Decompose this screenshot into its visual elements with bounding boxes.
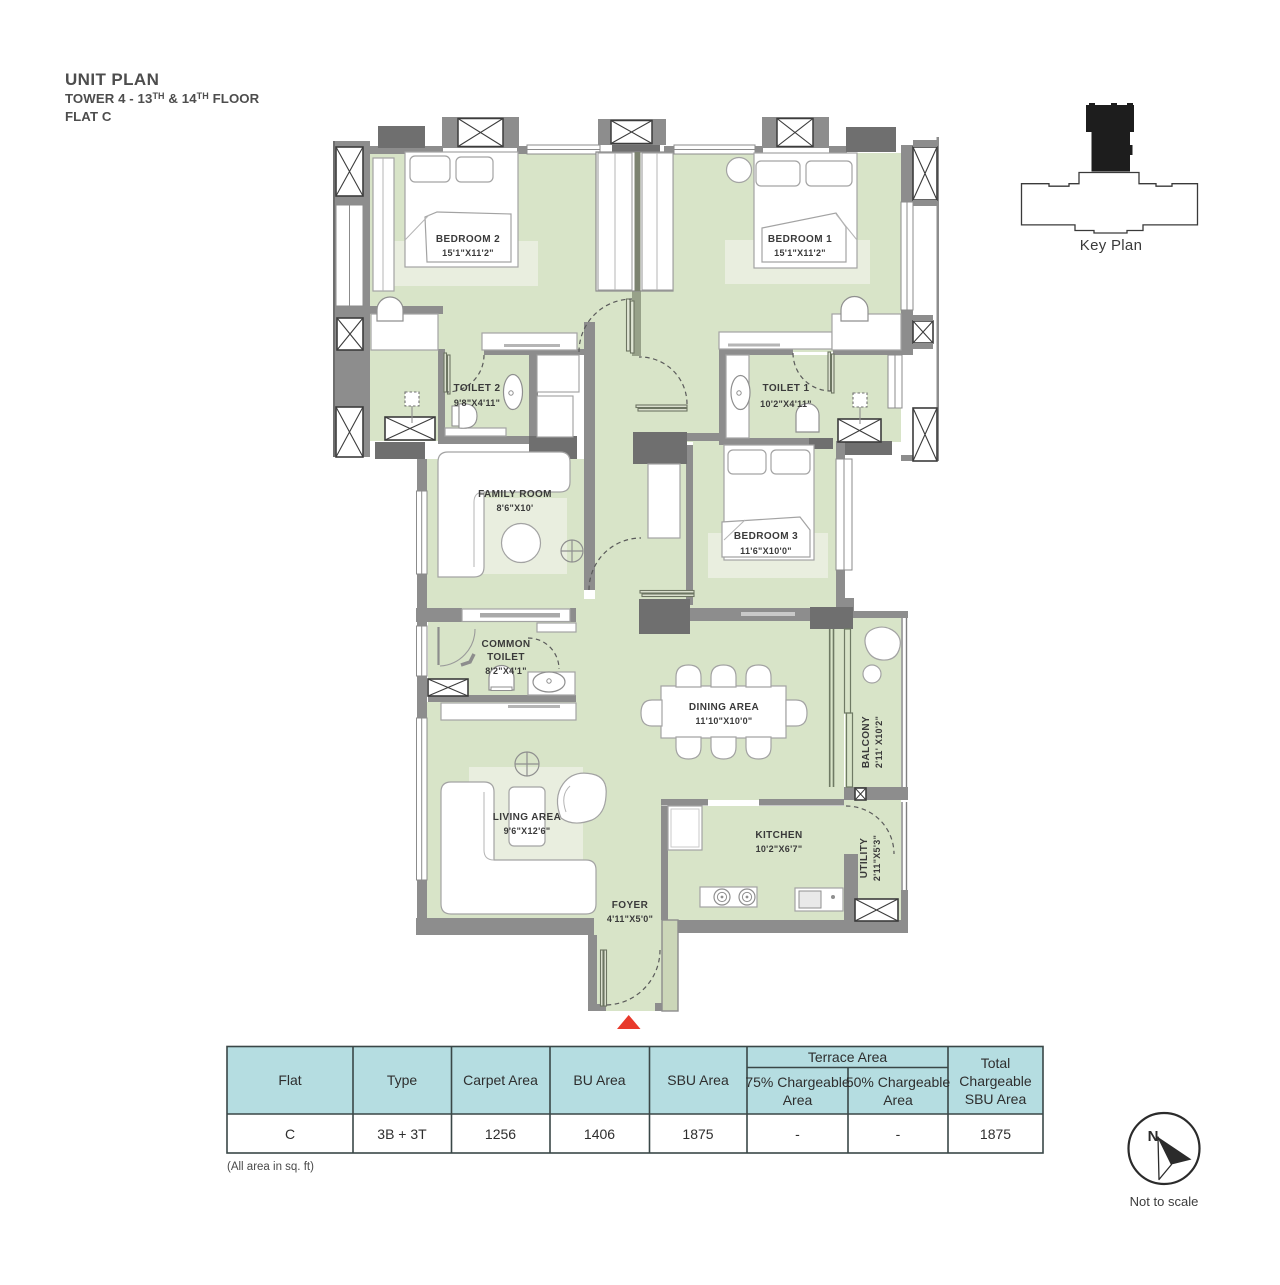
svg-text:1875: 1875 bbox=[682, 1126, 713, 1142]
svg-text:-: - bbox=[896, 1126, 901, 1142]
svg-text:Terrace Area: Terrace Area bbox=[808, 1049, 888, 1065]
svg-text:FLAT C: FLAT C bbox=[65, 109, 112, 124]
svg-text:UTILITY: UTILITY bbox=[859, 838, 870, 879]
svg-text:SBU Area: SBU Area bbox=[667, 1072, 729, 1088]
svg-text:9'8"X4'11": 9'8"X4'11" bbox=[454, 398, 500, 408]
svg-text:KITCHEN: KITCHEN bbox=[755, 830, 802, 841]
svg-text:Key Plan: Key Plan bbox=[1080, 237, 1142, 254]
svg-text:COMMON: COMMON bbox=[481, 639, 530, 650]
svg-text:BEDROOM 3: BEDROOM 3 bbox=[734, 531, 798, 542]
svg-text:9'6"X12'6": 9'6"X12'6" bbox=[504, 826, 551, 836]
svg-text:11'6"X10'0": 11'6"X10'0" bbox=[740, 546, 792, 556]
svg-text:Area: Area bbox=[883, 1092, 913, 1108]
svg-text:15'1"X11'2": 15'1"X11'2" bbox=[442, 248, 494, 258]
svg-text:C: C bbox=[285, 1126, 295, 1142]
svg-text:10'2"X4'11": 10'2"X4'11" bbox=[760, 399, 812, 409]
svg-text:8'6"X10': 8'6"X10' bbox=[497, 503, 534, 513]
svg-text:Carpet Area: Carpet Area bbox=[463, 1072, 538, 1088]
svg-text:8'2"X4'1": 8'2"X4'1" bbox=[485, 666, 527, 676]
svg-text:75% Chargeable: 75% Chargeable bbox=[745, 1074, 850, 1090]
svg-text:Chargeable: Chargeable bbox=[959, 1073, 1032, 1089]
svg-text:4'11"X5'0": 4'11"X5'0" bbox=[607, 914, 653, 924]
svg-text:1875: 1875 bbox=[980, 1126, 1011, 1142]
svg-text:DINING AREA: DINING AREA bbox=[689, 702, 759, 713]
svg-text:(All area in sq. ft): (All area in sq. ft) bbox=[227, 1161, 314, 1173]
svg-text:1406: 1406 bbox=[584, 1126, 615, 1142]
svg-text:-: - bbox=[795, 1126, 800, 1142]
svg-text:UNIT PLAN: UNIT PLAN bbox=[65, 70, 159, 89]
svg-text:15'1"X11'2": 15'1"X11'2" bbox=[774, 248, 826, 258]
svg-text:1256: 1256 bbox=[485, 1126, 516, 1142]
svg-text:TOILET: TOILET bbox=[487, 652, 525, 663]
svg-text:50% Chargeable: 50% Chargeable bbox=[846, 1074, 951, 1090]
svg-text:Flat: Flat bbox=[278, 1072, 301, 1088]
svg-text:BU Area: BU Area bbox=[573, 1072, 625, 1088]
svg-text:Not to scale: Not to scale bbox=[1130, 1194, 1199, 1209]
svg-text:LIVING AREA: LIVING AREA bbox=[493, 812, 561, 823]
svg-text:TOILET 2: TOILET 2 bbox=[454, 383, 501, 394]
svg-text:BEDROOM 1: BEDROOM 1 bbox=[768, 234, 832, 245]
svg-text:10'2"X6'7": 10'2"X6'7" bbox=[756, 844, 803, 854]
svg-text:TOILET 1: TOILET 1 bbox=[763, 383, 810, 394]
svg-text:SBU Area: SBU Area bbox=[965, 1091, 1027, 1107]
svg-text:3B + 3T: 3B + 3T bbox=[377, 1126, 427, 1142]
svg-text:Area: Area bbox=[783, 1092, 813, 1108]
svg-text:11'10"X10'0": 11'10"X10'0" bbox=[696, 716, 753, 726]
svg-text:FAMILY ROOM: FAMILY ROOM bbox=[478, 489, 552, 500]
svg-text:Total: Total bbox=[981, 1055, 1011, 1071]
svg-text:FOYER: FOYER bbox=[612, 900, 649, 911]
svg-text:2'11' X10'2": 2'11' X10'2" bbox=[874, 716, 884, 768]
svg-text:N: N bbox=[1148, 1128, 1159, 1145]
svg-text:2'11"X5'3": 2'11"X5'3" bbox=[872, 835, 882, 881]
svg-text:BALCONY: BALCONY bbox=[861, 716, 872, 768]
svg-text:BEDROOM 2: BEDROOM 2 bbox=[436, 234, 500, 245]
svg-text:Type: Type bbox=[387, 1072, 418, 1088]
